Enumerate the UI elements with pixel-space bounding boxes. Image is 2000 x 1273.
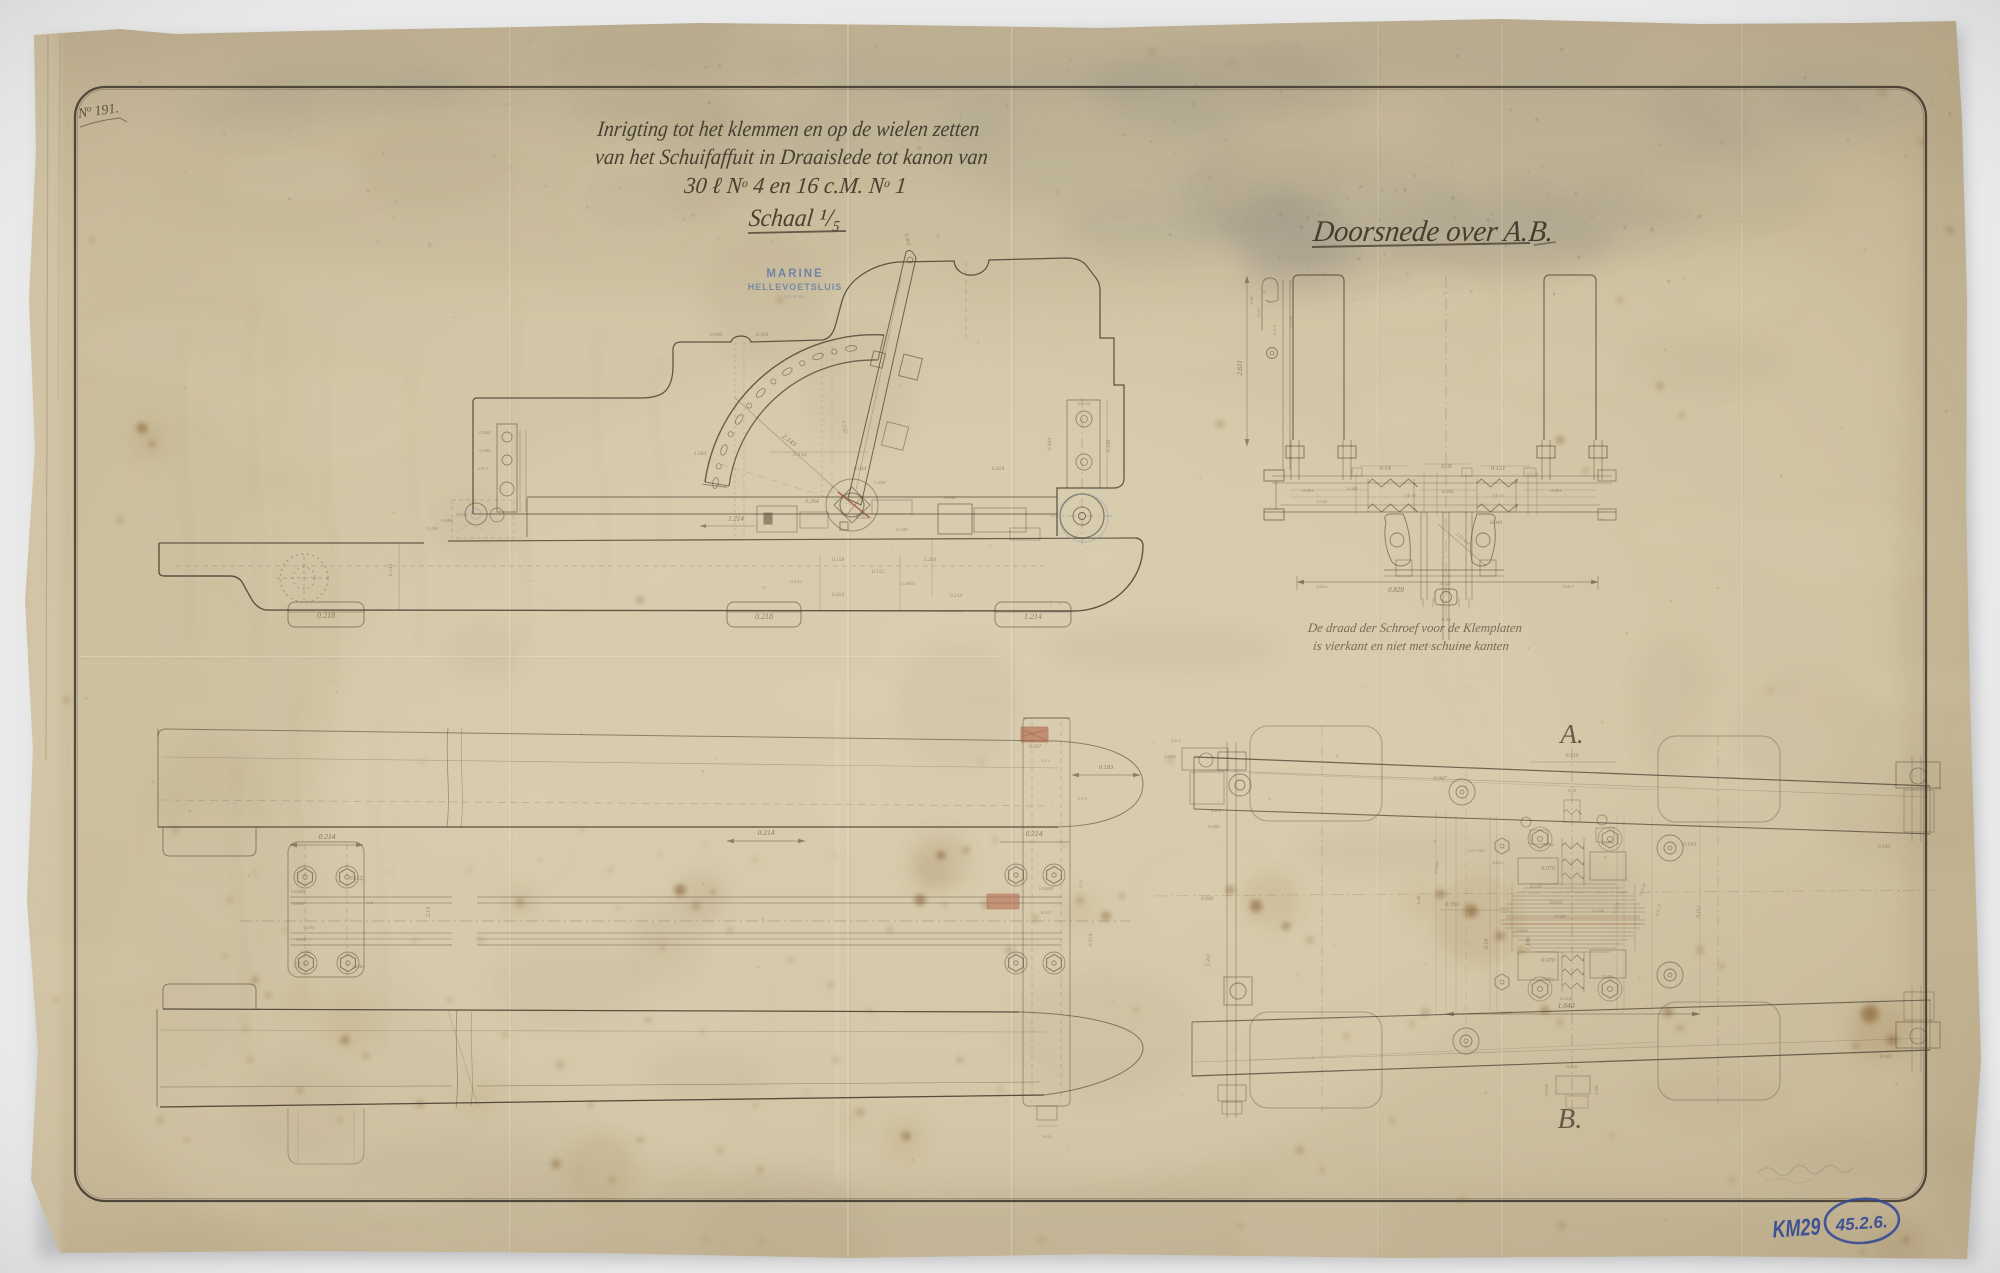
svg-text:0.116: 0.116 xyxy=(1567,1065,1578,1070)
svg-text:0.055: 0.055 xyxy=(1316,585,1328,590)
svg-text:0.363: 0.363 xyxy=(856,515,869,521)
svg-text:1.234: 1.234 xyxy=(924,556,937,563)
svg-text:HELLEVOETSLUIS: HELLEVOETSLUIS xyxy=(748,282,843,292)
svg-text:0.05: 0.05 xyxy=(1043,1135,1052,1140)
svg-text:0.404: 0.404 xyxy=(756,331,769,338)
svg-text:2.14: 2.14 xyxy=(425,907,432,918)
svg-text:0.183: 0.183 xyxy=(1099,764,1114,771)
svg-text:0.4 04: 0.4 04 xyxy=(1078,402,1091,407)
svg-text:0.046: 0.046 xyxy=(479,449,491,454)
svg-text:0.040: 0.040 xyxy=(1317,499,1328,504)
svg-text:0.264: 0.264 xyxy=(805,498,819,505)
svg-text:0.0248: 0.0248 xyxy=(1592,908,1605,913)
svg-text:0.424: 0.424 xyxy=(992,465,1005,472)
svg-text:0.0 0: 0.0 0 xyxy=(478,467,489,472)
svg-text:0.0 0.064: 0.0 0.064 xyxy=(1468,848,1486,853)
svg-text:0.007: 0.007 xyxy=(304,926,316,931)
svg-text:0.048: 0.048 xyxy=(1201,895,1214,902)
svg-text:0.092: 0.092 xyxy=(300,950,312,955)
svg-text:0.0 0: 0.0 0 xyxy=(1042,758,1052,763)
svg-text:0.152: 0.152 xyxy=(872,569,885,575)
svg-text:0.044: 0.044 xyxy=(854,465,867,472)
svg-text:0.088: 0.088 xyxy=(441,519,453,524)
svg-text:A.: A. xyxy=(1558,719,1583,749)
svg-text:1.214: 1.214 xyxy=(1024,612,1042,621)
svg-text:0.048: 0.048 xyxy=(1554,915,1566,920)
svg-text:0.0 15: 0.0 15 xyxy=(1492,493,1504,498)
svg-text:MARINE: MARINE xyxy=(766,268,823,280)
svg-text:0.48: 0.48 xyxy=(1417,895,1422,904)
svg-text:0.132: 0.132 xyxy=(790,580,802,585)
svg-text:0.047: 0.047 xyxy=(296,938,308,943)
svg-text:0.011: 0.011 xyxy=(1257,307,1262,318)
svg-text:0.040: 0.040 xyxy=(479,431,491,436)
svg-text:0.214: 0.214 xyxy=(758,828,775,837)
svg-text:30 ℓ No 4 en 16 c.M. No 1: 30 ℓ No 4 en 16 c.M. No 1 xyxy=(682,172,908,198)
svg-text:0.0 0: 0.0 0 xyxy=(1211,809,1222,814)
svg-text:0.0448: 0.0448 xyxy=(291,890,305,895)
svg-text:0.008: 0.008 xyxy=(456,513,468,518)
svg-text:0.218: 0.218 xyxy=(755,612,773,621)
svg-text:0.0 9: 0.0 9 xyxy=(1078,796,1088,801)
svg-text:0.116: 0.116 xyxy=(1565,753,1578,759)
svg-text:is vierkant en niet met schuin: is vierkant en niet met schuine kanten xyxy=(1312,638,1510,653)
svg-text:1.188: 1.188 xyxy=(1526,937,1532,951)
svg-text:0.18: 0.18 xyxy=(1484,939,1490,950)
svg-text:0.0 2: 0.0 2 xyxy=(1171,739,1182,744)
svg-text:2.411: 2.411 xyxy=(1205,953,1212,966)
svg-text:0.404: 0.404 xyxy=(1046,438,1053,451)
svg-text:0.0: 0.0 xyxy=(367,901,374,906)
svg-text:0.41: 0.41 xyxy=(1442,573,1450,578)
svg-text:0.06: 0.06 xyxy=(1568,789,1577,794)
svg-text:0.048: 0.048 xyxy=(1347,486,1358,491)
svg-text:0.12: 0.12 xyxy=(1079,879,1084,888)
svg-text:Litt. W. No.: Litt. W. No. xyxy=(784,294,806,299)
svg-text:0.044: 0.044 xyxy=(944,496,956,501)
svg-text:0.180: 0.180 xyxy=(896,528,908,533)
svg-text:0.048: 0.048 xyxy=(1164,755,1176,760)
svg-text:1.044: 1.044 xyxy=(694,450,707,457)
svg-text:0.112: 0.112 xyxy=(1695,905,1702,918)
svg-text:0.048: 0.048 xyxy=(352,965,364,970)
svg-text:0.0804: 0.0804 xyxy=(901,582,915,587)
svg-text:0.044: 0.044 xyxy=(1516,929,1528,934)
svg-text:0.214: 0.214 xyxy=(1026,829,1043,838)
svg-text:0.214: 0.214 xyxy=(1087,934,1094,947)
svg-text:0.111: 0.111 xyxy=(1041,911,1052,916)
svg-text:0.033: 0.033 xyxy=(1550,900,1563,906)
svg-text:KM29: KM29 xyxy=(1772,1213,1822,1243)
svg-text:0.417: 0.417 xyxy=(1440,582,1452,587)
svg-text:0.066: 0.066 xyxy=(710,332,723,338)
svg-text:0.40: 0.40 xyxy=(1250,295,1255,304)
svg-text:0.158: 0.158 xyxy=(832,557,845,563)
svg-text:0.095: 0.095 xyxy=(1602,841,1614,846)
svg-text:45.2.6.: 45.2.6. xyxy=(1834,1212,1888,1235)
svg-text:0.105: 0.105 xyxy=(1878,844,1891,850)
svg-text:0.093: 0.093 xyxy=(1542,843,1554,848)
svg-text:0.0448: 0.0448 xyxy=(1039,887,1053,892)
svg-text:0.070: 0.070 xyxy=(1541,866,1555,872)
svg-text:0.404: 0.404 xyxy=(874,481,886,486)
svg-text:1.214: 1.214 xyxy=(728,515,744,523)
svg-text:0.0: 0.0 xyxy=(1935,787,1942,792)
svg-text:0.424: 0.424 xyxy=(832,591,845,598)
svg-text:0.0 15: 0.0 15 xyxy=(1404,493,1416,498)
svg-text:0.406: 0.406 xyxy=(1208,825,1220,830)
svg-text:0.048: 0.048 xyxy=(1594,1084,1599,1095)
svg-text:0.048: 0.048 xyxy=(292,902,304,907)
svg-text:Schaal ¹/₅: Schaal ¹/₅ xyxy=(748,205,843,232)
svg-text:0.095: 0.095 xyxy=(1602,975,1614,980)
svg-text:0.093: 0.093 xyxy=(1542,977,1554,982)
svg-text:2.010: 2.010 xyxy=(1289,316,1295,329)
svg-text:0.041: 0.041 xyxy=(1683,841,1697,848)
svg-text:De draad der Schroef voor de K: De draad der Schroef voor de Klemplaten xyxy=(1306,620,1523,635)
svg-text:0.097: 0.097 xyxy=(1029,744,1042,750)
svg-text:0.013: 0.013 xyxy=(1562,585,1574,590)
svg-text:0.048: 0.048 xyxy=(426,527,438,532)
svg-text:0.228: 0.228 xyxy=(1530,885,1542,890)
svg-text:0.214: 0.214 xyxy=(319,832,336,841)
svg-text:0.061: 0.061 xyxy=(1550,489,1561,494)
svg-text:0.112: 0.112 xyxy=(349,876,362,882)
svg-text:0.143: 0.143 xyxy=(387,564,394,577)
svg-text:2.611: 2.611 xyxy=(1236,360,1244,375)
svg-text:0.345: 0.345 xyxy=(1442,488,1455,495)
svg-text:0.820: 0.820 xyxy=(1388,586,1404,594)
svg-text:0.022: 0.022 xyxy=(1492,861,1504,866)
svg-text:0.046: 0.046 xyxy=(1490,519,1503,526)
svg-text:0.061: 0.061 xyxy=(1302,489,1313,494)
svg-text:0.105: 0.105 xyxy=(1880,1054,1893,1060)
svg-text:0.0448: 0.0448 xyxy=(1544,1083,1549,1096)
svg-text:van het Schuifaffuit in Draais: van het Schuifaffuit in Draaislede tot k… xyxy=(594,144,990,169)
svg-text:0.214: 0.214 xyxy=(950,592,963,599)
svg-text:0.0 9: 0.0 9 xyxy=(1273,325,1278,336)
svg-text:Inrigting tot het klemmen en o: Inrigting tot het klemmen en op de wiele… xyxy=(595,116,981,141)
svg-text:0.153: 0.153 xyxy=(1445,902,1459,908)
svg-text:0.070: 0.070 xyxy=(1541,958,1555,964)
svg-text:1.040: 1.040 xyxy=(1558,1001,1575,1010)
svg-text:0.040: 0.040 xyxy=(1500,1011,1512,1016)
